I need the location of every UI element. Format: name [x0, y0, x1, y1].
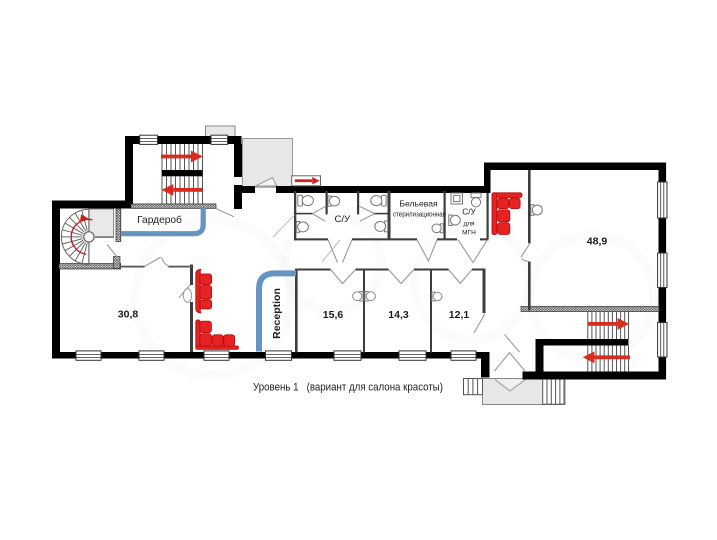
svg-text:С/У: С/У — [462, 206, 476, 216]
svg-text:30,8: 30,8 — [118, 309, 139, 321]
svg-text:14,3: 14,3 — [388, 309, 409, 321]
svg-text:для: для — [463, 220, 475, 227]
svg-text:Бельевая: Бельевая — [399, 199, 438, 209]
svg-text:Уровень 1 (вариант для салон: Уровень 1 (вариант для салона красоты) — [253, 382, 443, 394]
svg-text:15,6: 15,6 — [323, 309, 344, 321]
svg-text:МГН: МГН — [462, 229, 476, 236]
svg-text:48,9: 48,9 — [587, 236, 608, 248]
svg-text:стерилизационная: стерилизационная — [393, 212, 446, 219]
svg-text:Гардероб: Гардероб — [137, 214, 182, 226]
svg-text:С/У: С/У — [334, 214, 351, 225]
svg-text:12,1: 12,1 — [449, 309, 470, 321]
svg-text:Reception: Reception — [271, 288, 283, 339]
